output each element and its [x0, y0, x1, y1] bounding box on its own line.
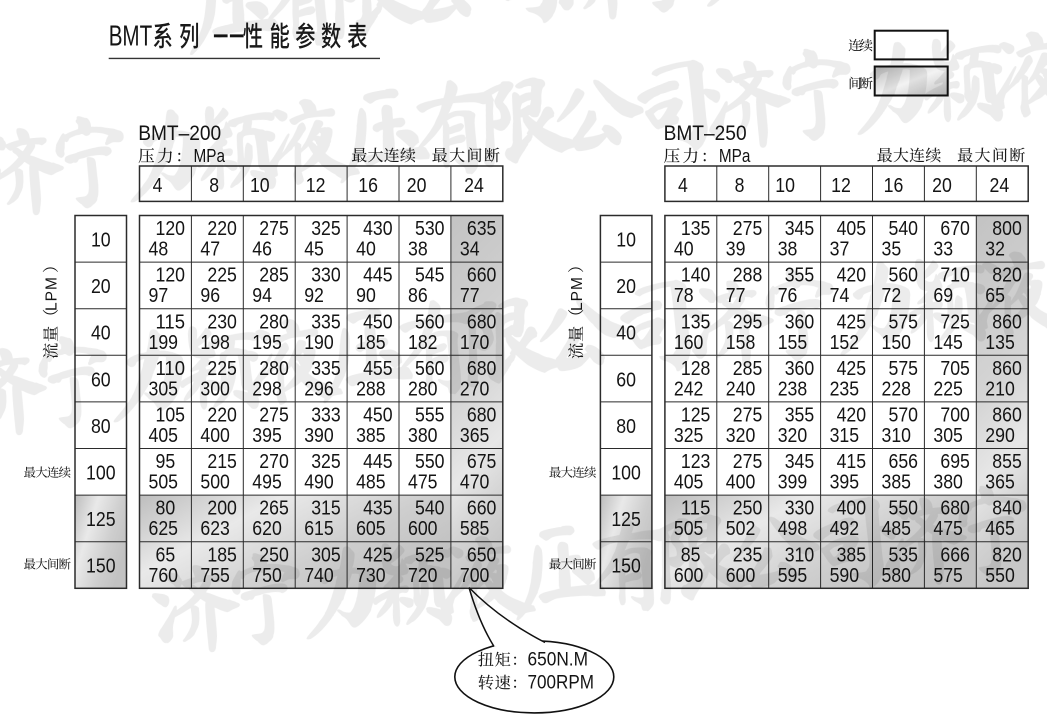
svg-text:24: 24	[464, 175, 484, 197]
svg-text:320: 320	[778, 425, 808, 447]
svg-text:270: 270	[259, 451, 289, 473]
svg-text:666: 666	[940, 544, 970, 566]
svg-text:623: 623	[200, 518, 230, 540]
svg-text:86: 86	[408, 285, 428, 307]
svg-text:285: 285	[259, 265, 289, 287]
svg-text:625: 625	[149, 518, 179, 540]
svg-text:125: 125	[86, 509, 116, 531]
svg-text:35: 35	[882, 239, 902, 261]
svg-text:425: 425	[837, 358, 867, 380]
svg-text:96: 96	[200, 285, 220, 307]
svg-text:700RPM: 700RPM	[528, 671, 595, 693]
svg-text:65: 65	[156, 544, 176, 566]
svg-text:34: 34	[460, 239, 480, 261]
svg-text:225: 225	[207, 265, 237, 287]
svg-text:310: 310	[882, 425, 912, 447]
svg-text:430: 430	[363, 218, 393, 240]
svg-text:135: 135	[681, 218, 711, 240]
svg-text:550: 550	[415, 451, 445, 473]
svg-text:315: 315	[830, 425, 860, 447]
svg-text:45: 45	[304, 239, 324, 261]
svg-text:540: 540	[415, 498, 445, 520]
svg-text:860: 860	[992, 405, 1022, 427]
svg-text:330: 330	[785, 498, 815, 520]
svg-text:275: 275	[733, 405, 763, 427]
svg-text:390: 390	[304, 425, 334, 447]
svg-text:330: 330	[311, 265, 341, 287]
svg-text:220: 220	[207, 405, 237, 427]
svg-text:185: 185	[207, 544, 237, 566]
svg-text:435: 435	[363, 498, 393, 520]
svg-text:94: 94	[252, 285, 272, 307]
svg-text:16: 16	[358, 175, 378, 197]
svg-text:445: 445	[363, 451, 393, 473]
svg-text:385: 385	[356, 425, 386, 447]
svg-text:123: 123	[681, 451, 711, 473]
svg-text:860: 860	[992, 358, 1022, 380]
svg-text:500: 500	[200, 472, 230, 494]
svg-text:10: 10	[91, 230, 111, 252]
svg-text:150: 150	[86, 556, 116, 578]
svg-text:140: 140	[681, 265, 711, 287]
svg-text:115: 115	[156, 311, 186, 333]
svg-text:120: 120	[156, 218, 186, 240]
svg-text:560: 560	[889, 265, 919, 287]
svg-text:620: 620	[252, 518, 281, 540]
svg-text:365: 365	[460, 425, 490, 447]
svg-text:305: 305	[311, 544, 341, 566]
svg-text:675: 675	[467, 451, 497, 473]
svg-text:39: 39	[726, 239, 746, 261]
svg-text:400: 400	[726, 472, 756, 494]
svg-text:570: 570	[889, 405, 919, 427]
svg-text:280: 280	[408, 378, 438, 400]
svg-text:660: 660	[467, 265, 497, 287]
svg-text:470: 470	[460, 472, 490, 494]
svg-text:10: 10	[616, 230, 636, 252]
svg-text:650N.M: 650N.M	[528, 648, 589, 670]
svg-text:12: 12	[831, 175, 851, 197]
svg-text:235: 235	[830, 378, 860, 400]
svg-text:240: 240	[726, 378, 756, 400]
svg-text:800: 800	[992, 218, 1022, 240]
svg-text:420: 420	[837, 265, 867, 287]
svg-text:265: 265	[259, 498, 289, 520]
svg-text:355: 355	[785, 405, 815, 427]
svg-text:275: 275	[259, 218, 289, 240]
svg-text:545: 545	[415, 265, 445, 287]
svg-text:20: 20	[616, 276, 636, 298]
svg-text:250: 250	[733, 498, 763, 520]
svg-text:680: 680	[467, 405, 497, 427]
svg-text:495: 495	[252, 472, 281, 494]
svg-text:660: 660	[467, 498, 497, 520]
svg-text:210: 210	[985, 378, 1015, 400]
svg-text:288: 288	[733, 265, 763, 287]
svg-text:10: 10	[775, 175, 795, 197]
svg-text:530: 530	[415, 218, 445, 240]
svg-text:LPM: LPM	[44, 276, 61, 311]
svg-text:125: 125	[681, 405, 711, 427]
svg-text:BMT: BMT	[109, 21, 153, 53]
svg-text:20: 20	[91, 276, 111, 298]
svg-text:46: 46	[252, 239, 272, 261]
svg-text:600: 600	[408, 518, 438, 540]
svg-text:80: 80	[616, 416, 636, 438]
svg-text:40: 40	[356, 239, 376, 261]
svg-text:635: 635	[467, 218, 497, 240]
svg-text:345: 345	[785, 218, 815, 240]
svg-text:656: 656	[889, 451, 919, 473]
svg-text:100: 100	[86, 463, 116, 485]
svg-text:37: 37	[830, 239, 850, 261]
svg-text:325: 325	[311, 218, 341, 240]
svg-text:90: 90	[356, 285, 376, 307]
svg-text:405: 405	[149, 425, 179, 447]
svg-text:605: 605	[356, 518, 386, 540]
svg-text:38: 38	[778, 239, 798, 261]
svg-text:48: 48	[149, 239, 169, 261]
svg-text:275: 275	[733, 451, 763, 473]
svg-text:700: 700	[940, 405, 970, 427]
svg-text:315: 315	[311, 498, 341, 520]
svg-text:120: 120	[156, 265, 186, 287]
svg-text:95: 95	[156, 451, 176, 473]
svg-text:275: 275	[259, 405, 289, 427]
svg-text:215: 215	[207, 451, 237, 473]
svg-text:80: 80	[91, 416, 111, 438]
svg-text:695: 695	[940, 451, 970, 473]
svg-text:200: 200	[207, 498, 237, 520]
svg-text:230: 230	[207, 311, 237, 333]
svg-text:97: 97	[149, 285, 169, 307]
svg-text:475: 475	[408, 472, 438, 494]
svg-text:405: 405	[837, 218, 867, 240]
svg-text:12: 12	[306, 175, 326, 197]
svg-text:555: 555	[415, 405, 445, 427]
svg-text:220: 220	[207, 218, 237, 240]
svg-text:333: 333	[311, 405, 341, 427]
svg-text:405: 405	[674, 472, 704, 494]
svg-text:360: 360	[785, 358, 815, 380]
svg-text:855: 855	[992, 451, 1022, 473]
svg-text:80: 80	[156, 498, 176, 520]
svg-text:16: 16	[884, 175, 904, 197]
svg-text:450: 450	[363, 405, 393, 427]
svg-text:345: 345	[785, 451, 815, 473]
svg-text:32: 32	[985, 239, 1005, 261]
svg-text:38: 38	[408, 239, 428, 261]
svg-text:399: 399	[778, 472, 808, 494]
svg-text:380: 380	[933, 472, 963, 494]
svg-text:40: 40	[91, 323, 111, 345]
svg-text:24: 24	[990, 175, 1010, 197]
svg-text:290: 290	[985, 425, 1015, 447]
svg-text:420: 420	[837, 405, 867, 427]
svg-text:305: 305	[933, 425, 963, 447]
svg-text:8: 8	[735, 175, 745, 197]
svg-text:540: 540	[889, 218, 919, 240]
svg-text:47: 47	[200, 239, 220, 261]
svg-text:60: 60	[616, 369, 636, 391]
svg-text:445: 445	[363, 265, 393, 287]
svg-text:490: 490	[304, 472, 334, 494]
svg-text:20: 20	[407, 175, 427, 197]
svg-text:380: 380	[408, 425, 438, 447]
svg-text:485: 485	[356, 472, 386, 494]
svg-text:385: 385	[882, 472, 912, 494]
svg-text:325: 325	[311, 451, 341, 473]
svg-text:275: 275	[733, 218, 763, 240]
svg-text:40: 40	[674, 239, 694, 261]
svg-text:225: 225	[933, 378, 963, 400]
svg-text:242: 242	[674, 378, 704, 400]
svg-text:615: 615	[304, 518, 334, 540]
svg-text:400: 400	[200, 425, 230, 447]
svg-text:238: 238	[778, 378, 808, 400]
svg-text:415: 415	[837, 451, 867, 473]
svg-text:575: 575	[889, 358, 919, 380]
svg-text:33: 33	[933, 239, 953, 261]
svg-text:670: 670	[940, 218, 970, 240]
svg-text:20: 20	[932, 175, 952, 197]
svg-text:100: 100	[611, 463, 641, 485]
svg-text:4: 4	[678, 175, 688, 197]
svg-text:505: 505	[149, 472, 179, 494]
svg-text:705: 705	[940, 358, 970, 380]
svg-text:228: 228	[882, 378, 912, 400]
svg-text:395: 395	[252, 425, 281, 447]
svg-text:395: 395	[830, 472, 860, 494]
svg-text:77: 77	[460, 285, 480, 307]
svg-text:MPa: MPa	[719, 146, 751, 166]
svg-text:320: 320	[726, 425, 756, 447]
svg-text:325: 325	[674, 425, 704, 447]
svg-text:92: 92	[304, 285, 324, 307]
